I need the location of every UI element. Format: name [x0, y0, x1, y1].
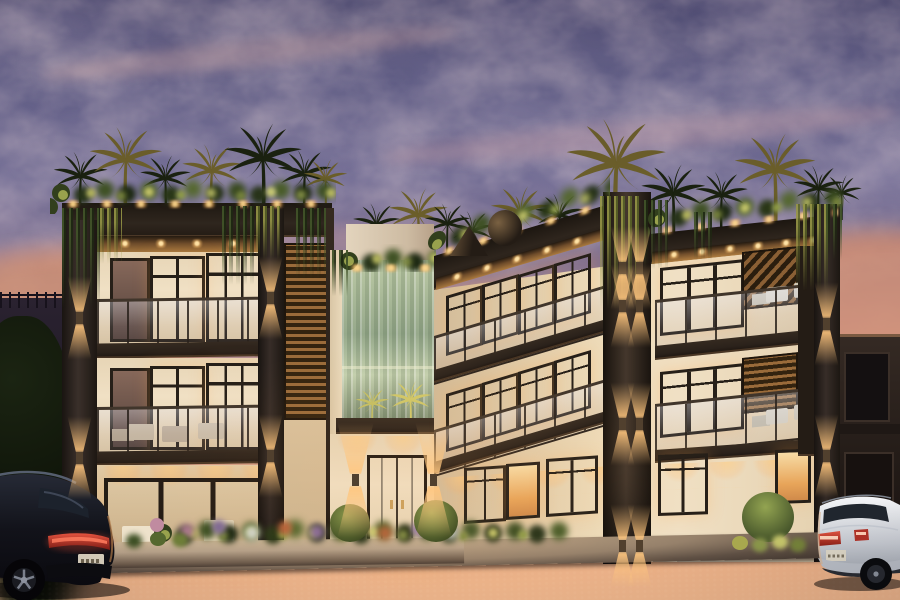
- right-bush: [742, 492, 794, 542]
- roof-uplights: [56, 200, 330, 208]
- taillight-core: [820, 536, 838, 540]
- hanging-vines: [100, 208, 122, 266]
- wall-sconce: [636, 540, 643, 552]
- left-shrubs: [150, 532, 166, 546]
- hanging-vines: [826, 204, 842, 262]
- hanging-vines: [694, 212, 714, 262]
- wall-sconce: [267, 450, 274, 462]
- background-railing-left: [0, 292, 62, 308]
- window: [658, 453, 708, 516]
- street-light-reflection: [340, 568, 480, 594]
- wall-sconce: [619, 300, 626, 312]
- wall-sconce: [619, 418, 626, 430]
- flower-clusters: [150, 518, 164, 532]
- rim-hub: [21, 577, 27, 583]
- background-house-floor-band: [836, 424, 900, 434]
- wall-sconce: [76, 452, 83, 464]
- wall-sconce: [823, 318, 830, 330]
- wall-sconce: [352, 474, 359, 486]
- taillight-core: [856, 532, 866, 535]
- planting-uplights: [340, 264, 434, 272]
- hanging-vines: [296, 208, 326, 282]
- roof-sculpture-sphere: [488, 210, 522, 246]
- hanging-vines: [332, 250, 348, 298]
- wall-sconce: [636, 300, 643, 312]
- rim-hub: [873, 571, 878, 576]
- wall-sconce: [430, 474, 437, 486]
- lit-shrub-cluster: [58, 190, 68, 200]
- window: [506, 462, 540, 520]
- wall-sconce: [636, 418, 643, 430]
- door-handle: [390, 500, 393, 509]
- background-house-window: [844, 352, 890, 422]
- architectural-rendering: [0, 0, 900, 600]
- waterfall-ledge: [342, 366, 434, 369]
- right-low-shrubs: [732, 536, 748, 550]
- black-suv: [0, 452, 138, 600]
- window: [464, 465, 506, 524]
- door-handle: [401, 500, 404, 509]
- wall-sconce: [823, 450, 830, 462]
- window: [546, 455, 598, 517]
- hanging-vines: [222, 206, 254, 288]
- wall-sconce: [76, 312, 83, 324]
- wall-sconce: [619, 540, 626, 552]
- wall-sconce: [267, 292, 274, 304]
